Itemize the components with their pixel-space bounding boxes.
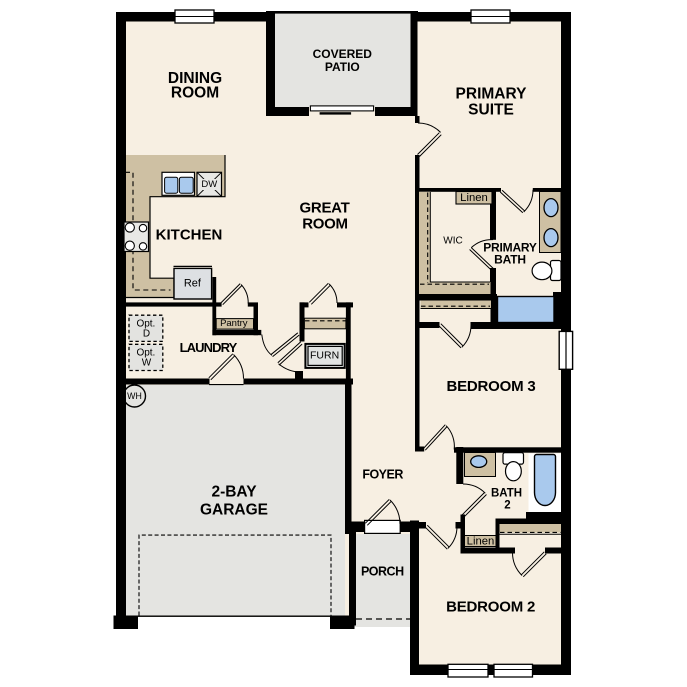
svg-text:PORCH: PORCH [361, 565, 404, 579]
svg-text:GARAGE: GARAGE [200, 502, 268, 519]
svg-text:LAUNDRY: LAUNDRY [180, 340, 238, 355]
svg-text:W: W [142, 357, 152, 368]
svg-text:D: D [143, 328, 150, 339]
svg-text:FURN: FURN [310, 350, 339, 362]
svg-text:PRIMARY: PRIMARY [456, 86, 528, 103]
svg-text:Ref: Ref [184, 278, 202, 290]
svg-text:FOYER: FOYER [362, 468, 403, 482]
svg-text:GREAT: GREAT [300, 199, 350, 216]
svg-text:BEDROOM 3: BEDROOM 3 [446, 378, 535, 395]
svg-text:BATH: BATH [491, 487, 522, 499]
svg-text:ROOM: ROOM [302, 216, 347, 233]
svg-text:Linen: Linen [467, 536, 495, 548]
svg-text:PATIO: PATIO [325, 60, 360, 74]
svg-text:COVERED: COVERED [313, 47, 373, 61]
svg-text:Pantry: Pantry [220, 318, 248, 329]
svg-text:2-BAY: 2-BAY [211, 484, 257, 501]
svg-text:2: 2 [504, 500, 510, 512]
svg-text:BATH: BATH [494, 252, 526, 266]
svg-text:ROOM: ROOM [171, 85, 219, 102]
svg-text:Linen: Linen [460, 192, 488, 204]
svg-text:KITCHEN: KITCHEN [156, 227, 223, 244]
svg-text:WIC: WIC [443, 236, 462, 247]
svg-text:WH: WH [127, 391, 142, 401]
svg-text:BEDROOM 2: BEDROOM 2 [446, 598, 535, 615]
svg-text:SUITE: SUITE [468, 102, 514, 119]
svg-text:DW: DW [201, 179, 217, 190]
